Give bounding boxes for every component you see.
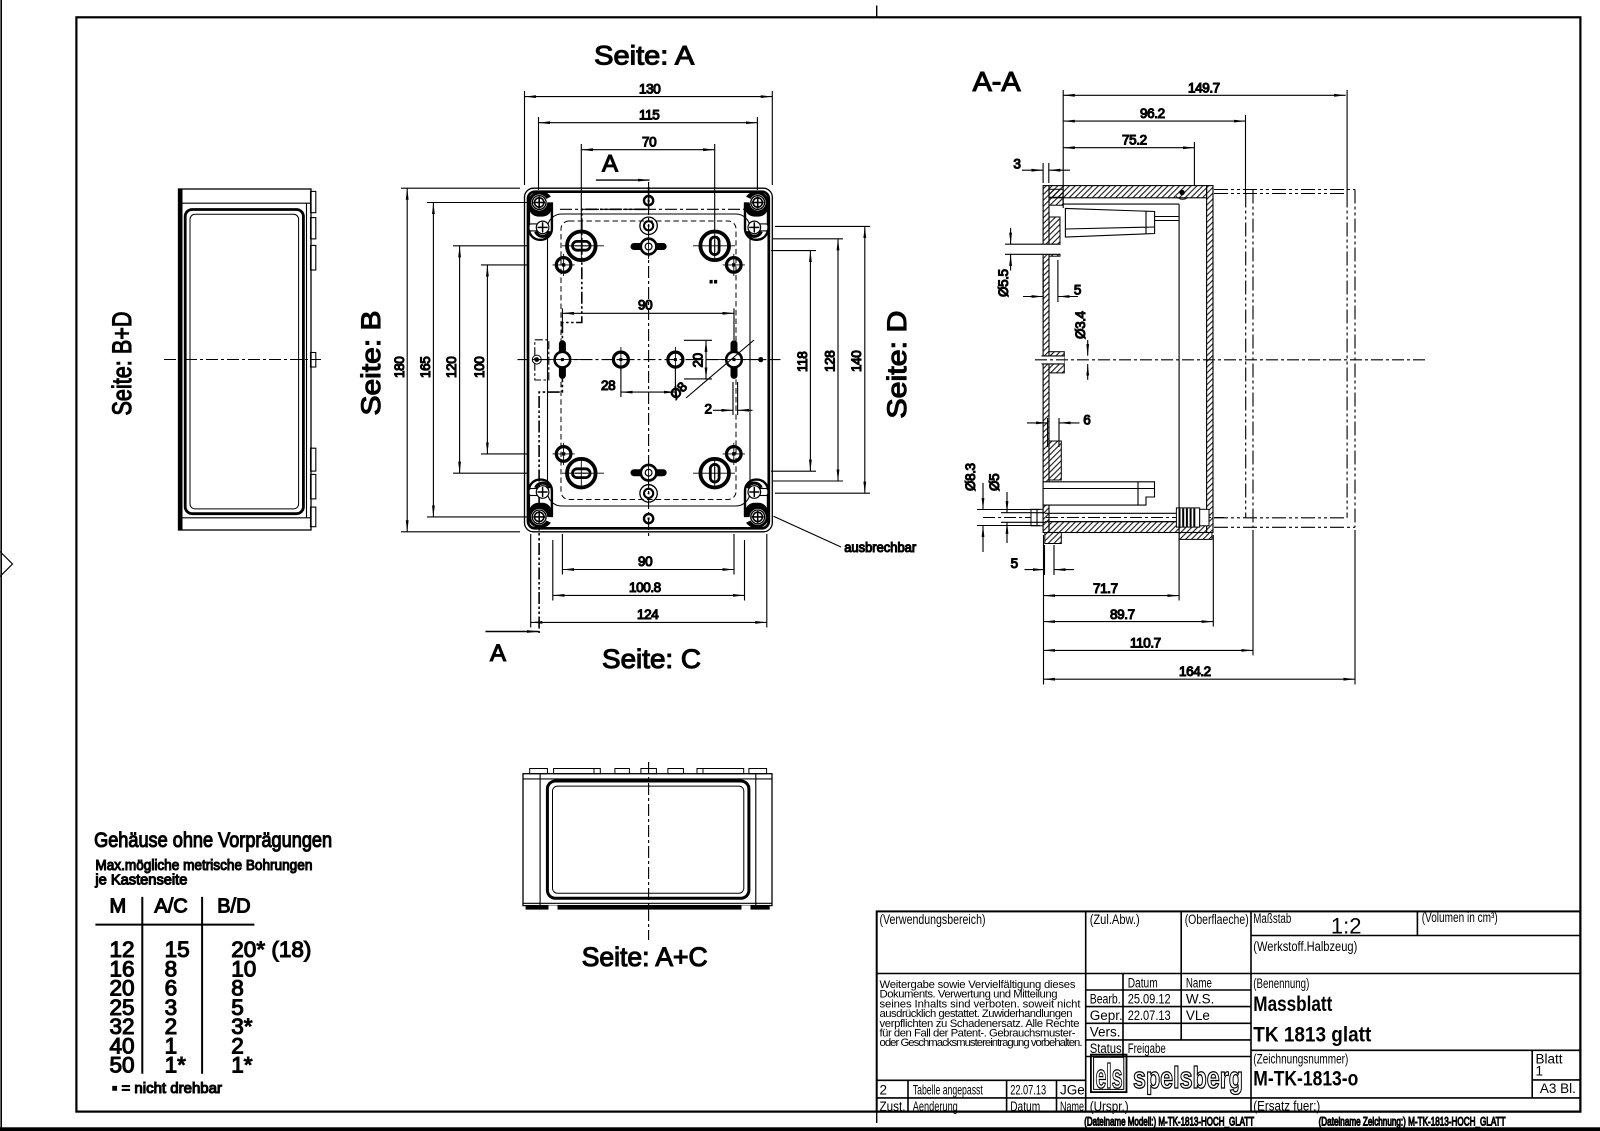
svg-text:Vers.: Vers. xyxy=(1090,1025,1121,1040)
svg-text:71.7: 71.7 xyxy=(1093,581,1118,596)
svg-text:▪ = nicht drehbar: ▪ = nicht drehbar xyxy=(112,1080,222,1097)
svg-text:149.7: 149.7 xyxy=(1188,80,1220,95)
svg-text:Seite: D: Seite: D xyxy=(882,311,912,419)
svg-text:164.2: 164.2 xyxy=(1179,664,1211,679)
svg-text:A: A xyxy=(602,151,618,178)
svg-text:1: 1 xyxy=(1536,1064,1544,1079)
svg-text:25.09.12: 25.09.12 xyxy=(1128,991,1171,1006)
svg-text:W.S.: W.S. xyxy=(1186,991,1215,1006)
svg-text:28: 28 xyxy=(601,378,615,393)
svg-text:Ø8: Ø8 xyxy=(667,379,690,402)
svg-text:Bearb.: Bearb. xyxy=(1090,991,1121,1006)
svg-text:(Dateiname Modell:) M-TK-1813-: (Dateiname Modell:) M-TK-1813-HOCH_GLATT xyxy=(1084,1114,1254,1128)
svg-text:2: 2 xyxy=(705,402,712,417)
svg-text:JGe: JGe xyxy=(1060,1083,1085,1098)
svg-text:Seite: C: Seite: C xyxy=(602,644,701,674)
svg-text:Maßstab: Maßstab xyxy=(1253,911,1291,926)
svg-text:spelsberg: spelsberg xyxy=(1133,1060,1243,1095)
svg-text:89.7: 89.7 xyxy=(1110,607,1135,622)
svg-text:els: els xyxy=(1096,1058,1123,1096)
svg-text:(Oberflaeche): (Oberflaeche) xyxy=(1185,912,1249,927)
svg-text:6: 6 xyxy=(1083,412,1090,427)
svg-text:5: 5 xyxy=(1074,282,1081,297)
svg-text:2: 2 xyxy=(880,1083,888,1098)
svg-text:96.2: 96.2 xyxy=(1140,106,1165,121)
svg-text:Datum: Datum xyxy=(1128,975,1158,990)
svg-text:Massblatt: Massblatt xyxy=(1253,993,1332,1016)
svg-text:Gepr.: Gepr. xyxy=(1090,1008,1123,1023)
svg-text:3: 3 xyxy=(1013,157,1020,172)
svg-text:100: 100 xyxy=(472,357,487,378)
svg-text:A: A xyxy=(490,640,506,667)
svg-text:A/C: A/C xyxy=(154,895,187,917)
svg-text:M: M xyxy=(110,895,127,917)
svg-text:1:2: 1:2 xyxy=(1331,913,1362,938)
svg-text:B/D: B/D xyxy=(217,895,250,917)
svg-text:180: 180 xyxy=(392,357,407,378)
svg-text:TK 1813 glatt: TK 1813 glatt xyxy=(1253,1024,1371,1047)
svg-text:Gehäuse ohne Vorprägungen: Gehäuse ohne Vorprägungen xyxy=(94,829,332,852)
svg-text:124: 124 xyxy=(637,607,659,622)
svg-text:20: 20 xyxy=(691,353,706,367)
svg-text:90: 90 xyxy=(638,554,652,569)
svg-text:je Kastenseite: je Kastenseite xyxy=(94,872,187,889)
svg-text:Seite: A+C: Seite: A+C xyxy=(582,942,708,972)
svg-text:Ø3.4: Ø3.4 xyxy=(1073,310,1088,339)
svg-text:Seite: B+D: Seite: B+D xyxy=(107,312,137,416)
svg-text:(Volumen in cm³): (Volumen in cm³) xyxy=(1422,910,1498,925)
svg-text:Ø5.5: Ø5.5 xyxy=(996,269,1011,297)
svg-text:Seite: A: Seite: A xyxy=(594,41,694,71)
svg-text:118: 118 xyxy=(795,352,810,372)
svg-text:A-A: A-A xyxy=(973,66,1021,97)
svg-text:22.07.13: 22.07.13 xyxy=(1010,1083,1046,1098)
svg-text:110.7: 110.7 xyxy=(1130,636,1161,651)
svg-text:oder Geschmacksmustereintragun: oder Geschmacksmustereintragung vorbehal… xyxy=(880,1037,1083,1049)
svg-text:130: 130 xyxy=(639,82,660,97)
svg-text:(Benennung): (Benennung) xyxy=(1253,976,1309,991)
svg-text:Seite: B: Seite: B xyxy=(356,311,386,416)
svg-text:Zust.: Zust. xyxy=(880,1099,906,1114)
svg-text:Datum: Datum xyxy=(1010,1099,1040,1114)
svg-text:5: 5 xyxy=(1011,556,1018,571)
svg-text:ausbrechbar: ausbrechbar xyxy=(844,539,916,555)
svg-text:(Verwendungsbereich): (Verwendungsbereich) xyxy=(880,912,986,927)
svg-text:(Zul.Abw.): (Zul.Abw.) xyxy=(1090,912,1140,927)
svg-text:(Zeichnungsnummer): (Zeichnungsnummer) xyxy=(1253,1052,1348,1067)
svg-text:Name: Name xyxy=(1060,1099,1084,1114)
svg-text:Freigabe: Freigabe xyxy=(1128,1041,1166,1056)
svg-text:Ø5: Ø5 xyxy=(987,474,1002,491)
svg-text:1*: 1* xyxy=(231,1053,253,1078)
svg-text:(Ersatz fuer:): (Ersatz fuer:) xyxy=(1253,1099,1320,1114)
svg-text:Tabelle angepasst: Tabelle angepasst xyxy=(913,1083,983,1098)
svg-text:115: 115 xyxy=(639,108,659,123)
svg-text:(Urspr.): (Urspr.) xyxy=(1090,1099,1129,1114)
svg-text:Aenderung: Aenderung xyxy=(913,1099,958,1114)
svg-text:Ø8.3: Ø8.3 xyxy=(963,463,978,491)
svg-text:1*: 1* xyxy=(165,1053,187,1078)
svg-text:128: 128 xyxy=(823,351,838,372)
svg-text:50: 50 xyxy=(110,1053,135,1078)
svg-text:120: 120 xyxy=(444,357,459,378)
svg-text:(Werkstoff.Halbzeug): (Werkstoff.Halbzeug) xyxy=(1253,939,1357,954)
svg-text:140: 140 xyxy=(849,351,864,372)
svg-text:22.07.13: 22.07.13 xyxy=(1128,1008,1171,1023)
svg-text:70: 70 xyxy=(642,135,656,150)
svg-text:90: 90 xyxy=(638,297,652,312)
svg-text:100.8: 100.8 xyxy=(629,580,661,595)
svg-text:VLe: VLe xyxy=(1186,1008,1210,1023)
svg-text:(Dateiname Zeichnung:) M-TK-18: (Dateiname Zeichnung:) M-TK-1813-HOCH_GL… xyxy=(1319,1114,1506,1128)
svg-text:A3 Bl.: A3 Bl. xyxy=(1540,1081,1576,1096)
svg-text:Name: Name xyxy=(1186,975,1212,990)
svg-text:165: 165 xyxy=(418,357,433,378)
svg-text:75.2: 75.2 xyxy=(1122,133,1147,148)
svg-text:M-TK-1813-o: M-TK-1813-o xyxy=(1253,1067,1358,1090)
